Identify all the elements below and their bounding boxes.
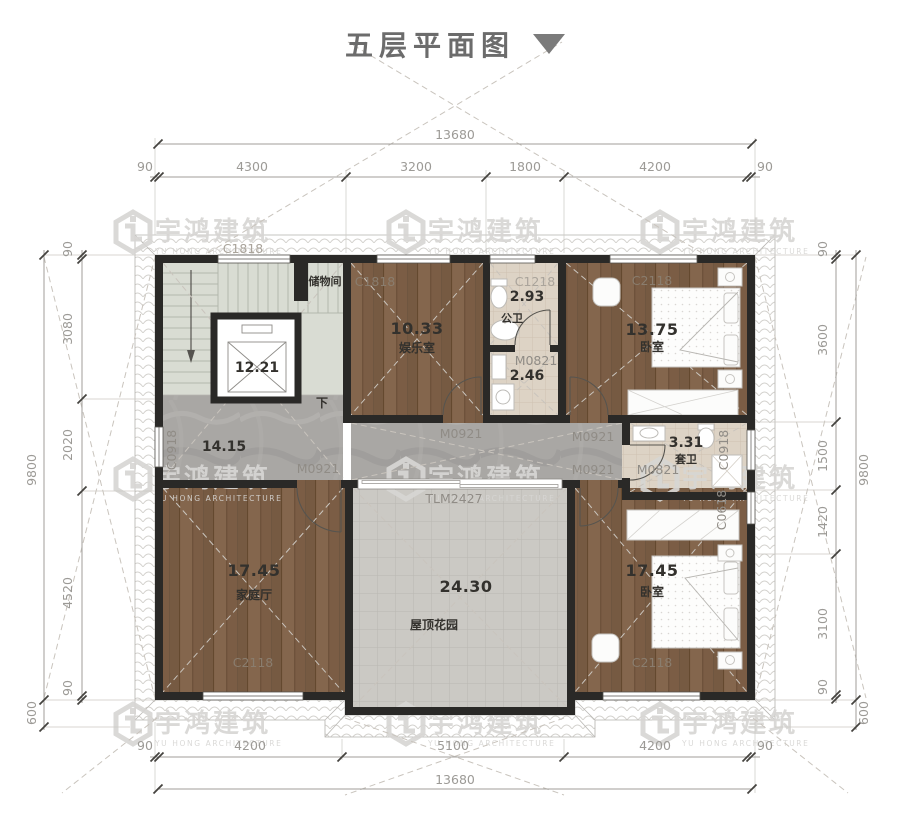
dim-left-seg: 3080 <box>60 313 75 345</box>
nightstand-icon <box>718 268 742 286</box>
svg-text:宇鸿建筑: 宇鸿建筑 <box>682 708 798 739</box>
dim-top-seg: 1800 <box>509 159 541 174</box>
label-elevator-area: 12.21 <box>235 360 279 376</box>
chair-icon <box>592 634 619 662</box>
svg-text:YU HONG ARCHITECTURE: YU HONG ARCHITECTURE <box>154 494 282 503</box>
dim-right-overhang: 600 <box>856 701 871 725</box>
code-c0618-right: C0618 <box>714 490 729 531</box>
label-entertainment-area: 10.33 <box>390 319 443 338</box>
svg-text:宇鸿建筑: 宇鸿建筑 <box>155 708 271 739</box>
window-c2118-top <box>610 255 697 263</box>
code-c1818-ent: C1818 <box>355 274 396 289</box>
code-m0921-bed-top: M0921 <box>572 429 615 444</box>
label-storage: 储物间 <box>309 274 342 288</box>
dim-top-seg: 90 <box>137 159 153 174</box>
laundry-sink-icon <box>492 355 506 379</box>
watermark: 宇鸿建筑YU HONG ARCHITECTURE <box>643 212 809 256</box>
dim-left-overhang: 600 <box>24 701 39 725</box>
code-c2118-top: C2118 <box>632 273 673 288</box>
nightstand-icon <box>718 545 742 561</box>
dim-top-seg: 4200 <box>639 159 671 174</box>
window-c0918-left <box>155 427 163 467</box>
code-m0821-utility: M0821 <box>515 353 558 368</box>
dim-left-seg: 90 <box>60 680 75 696</box>
pillow-icon <box>724 293 738 323</box>
code-c2118-family: C2118 <box>233 655 274 670</box>
code-c0918-right: C0918 <box>716 430 731 471</box>
dim-bottom-seg: 90 <box>757 738 773 753</box>
page-title-row: 五层平面图 <box>0 24 910 64</box>
window-c1818-entertainment <box>377 255 450 263</box>
code-tlm2427: TLM2427 <box>424 491 482 506</box>
code-c0918-left: C0918 <box>164 430 179 471</box>
label-hallway-area: 14.15 <box>202 439 246 455</box>
pillow-icon <box>724 608 738 640</box>
label-entertainment-name: 娱乐室 <box>399 340 435 355</box>
dim-right-seg: 3600 <box>815 324 830 356</box>
washer-icon <box>492 384 514 410</box>
label-family-name: 家庭厅 <box>236 587 272 602</box>
label-bedroom-top-name: 卧室 <box>640 339 664 354</box>
label-bedroom-bottom-area: 17.45 <box>625 561 678 580</box>
dim-top-total: 13680 <box>435 127 475 142</box>
elevator <box>214 316 298 400</box>
dim-right-seg: 1420 <box>815 506 830 538</box>
window-c0618-right <box>747 492 755 524</box>
label-public-bath-area: 2.93 <box>510 289 545 305</box>
dim-bottom-seg: 5100 <box>437 738 469 753</box>
code-c1218: C1218 <box>515 274 556 289</box>
watermark: 宇鸿建筑YU HONG ARCHITECTURE <box>389 212 555 256</box>
label-public-bath-name: 公卫 <box>501 312 523 325</box>
label-garden-name: 屋顶花园 <box>410 617 458 632</box>
dim-top-seg: 90 <box>757 159 773 174</box>
dim-bottom-total: 13680 <box>435 772 475 787</box>
page-title: 五层平面图 <box>345 24 515 64</box>
window-c2118-bedroom <box>603 692 700 700</box>
dim-left-total: 9800 <box>24 454 39 486</box>
svg-text:宇鸿建筑: 宇鸿建筑 <box>682 216 798 247</box>
dim-right-seg: 3100 <box>815 608 830 640</box>
label-bedroom-bottom-name: 卧室 <box>640 584 664 599</box>
label-utility-area: 2.46 <box>510 368 545 384</box>
floor-plan-page: { "title": { "text": "五层平面图" }, "waterma… <box>0 0 910 827</box>
code-c2118-bed: C2118 <box>632 655 673 670</box>
dim-bottom-seg: 90 <box>137 738 153 753</box>
dim-right-total: 9800 <box>856 454 871 486</box>
dim-bottom-seg: 4200 <box>639 738 671 753</box>
dim-top-seg: 3200 <box>400 159 432 174</box>
floor-plan-svg: 宇鸿建筑YU HONG ARCHITECTURE 宇鸿建筑YU HONG ARC… <box>0 0 910 827</box>
nightstand-icon <box>718 370 742 388</box>
toilet-icon <box>491 279 507 286</box>
code-m0921-bed-bottom: M0921 <box>572 462 615 477</box>
label-family-area: 17.45 <box>227 561 280 580</box>
code-m0921-ent: M0921 <box>440 426 483 441</box>
window-c1818-stair <box>218 255 290 263</box>
dim-left-seg: 2020 <box>60 429 75 461</box>
dim-top-seg: 4300 <box>236 159 268 174</box>
code-m0921-family: M0921 <box>297 461 340 476</box>
svg-text:YU HONG ARCHITECTURE: YU HONG ARCHITECTURE <box>681 739 809 748</box>
window-c0918-right <box>747 430 755 470</box>
sliding-door-tlm2427 <box>358 479 562 489</box>
dim-right-seg: 1500 <box>815 440 830 472</box>
dim-right-seg: 90 <box>815 241 830 257</box>
label-stair-down: 下 <box>316 396 328 410</box>
nightstand-icon <box>718 652 742 669</box>
code-c1818-eave: C1818 <box>223 241 264 256</box>
window-c1218 <box>490 255 535 263</box>
label-ensuite-area: 3.31 <box>669 435 704 451</box>
pillow-icon <box>724 562 738 594</box>
dim-bottom-seg: 4200 <box>234 738 266 753</box>
chair-icon <box>593 278 620 306</box>
dim-left-seg: 4520 <box>60 577 75 609</box>
dim-right-seg: 90 <box>815 679 830 695</box>
dim-left-seg: 90 <box>60 241 75 257</box>
collapse-triangle-icon[interactable] <box>533 34 565 54</box>
label-garden-area: 24.30 <box>439 577 492 596</box>
label-bedroom-top-area: 13.75 <box>625 320 678 339</box>
code-m0821-ensuite: M0821 <box>637 462 680 477</box>
window-c2118-family <box>203 692 303 700</box>
